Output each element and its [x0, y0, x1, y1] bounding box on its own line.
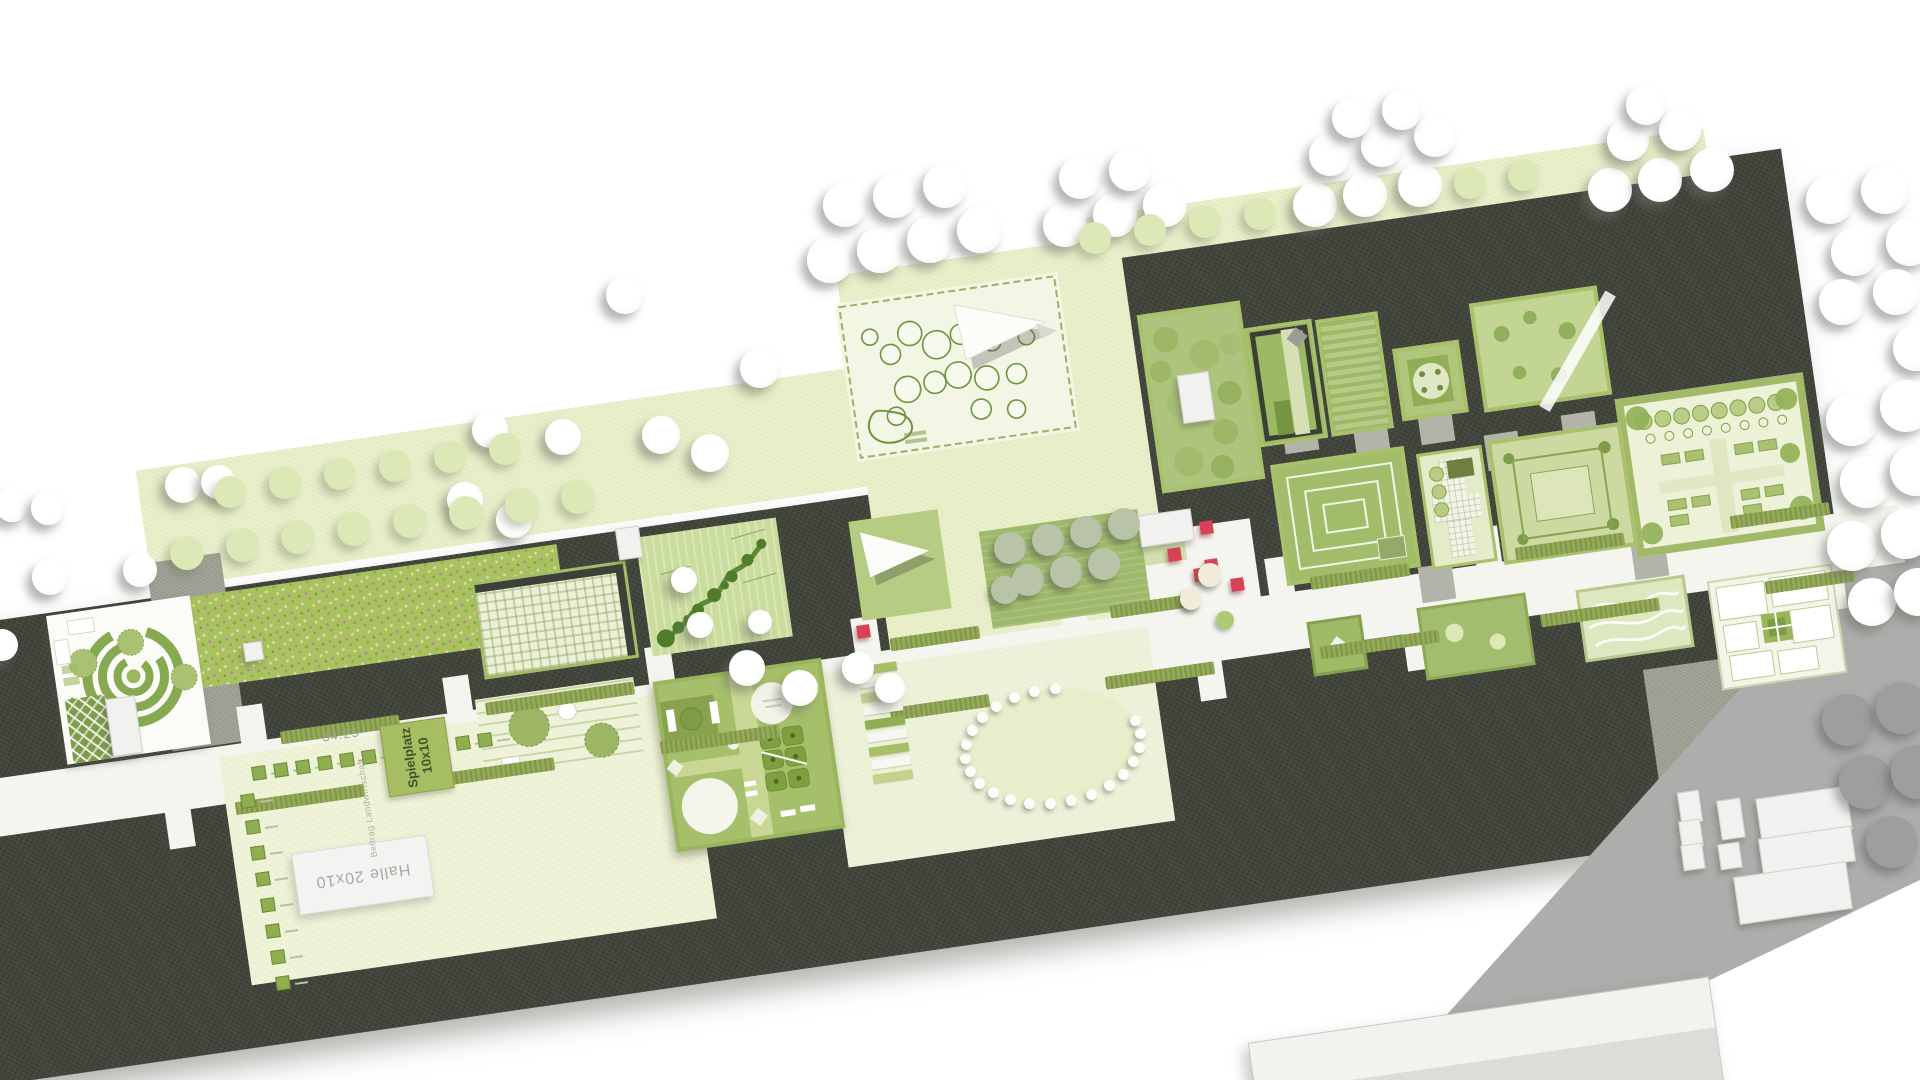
- spielplatz-label: Spielplatz 10x10: [397, 725, 437, 790]
- spielplatz-box: Spielplatz 10x10: [379, 717, 455, 798]
- faint-note-label: Beitrag Landwirtschaft: [351, 728, 379, 858]
- site-plan: Spielplatz 10x10 Halle 20x10 34.25 Beitr…: [0, 0, 1920, 1080]
- halle-label: Halle 20x10: [314, 859, 411, 890]
- labels-layer: Spielplatz 10x10 Halle 20x10 34.25 Beitr…: [0, 0, 1920, 1080]
- halle-box: Halle 20x10: [291, 835, 434, 916]
